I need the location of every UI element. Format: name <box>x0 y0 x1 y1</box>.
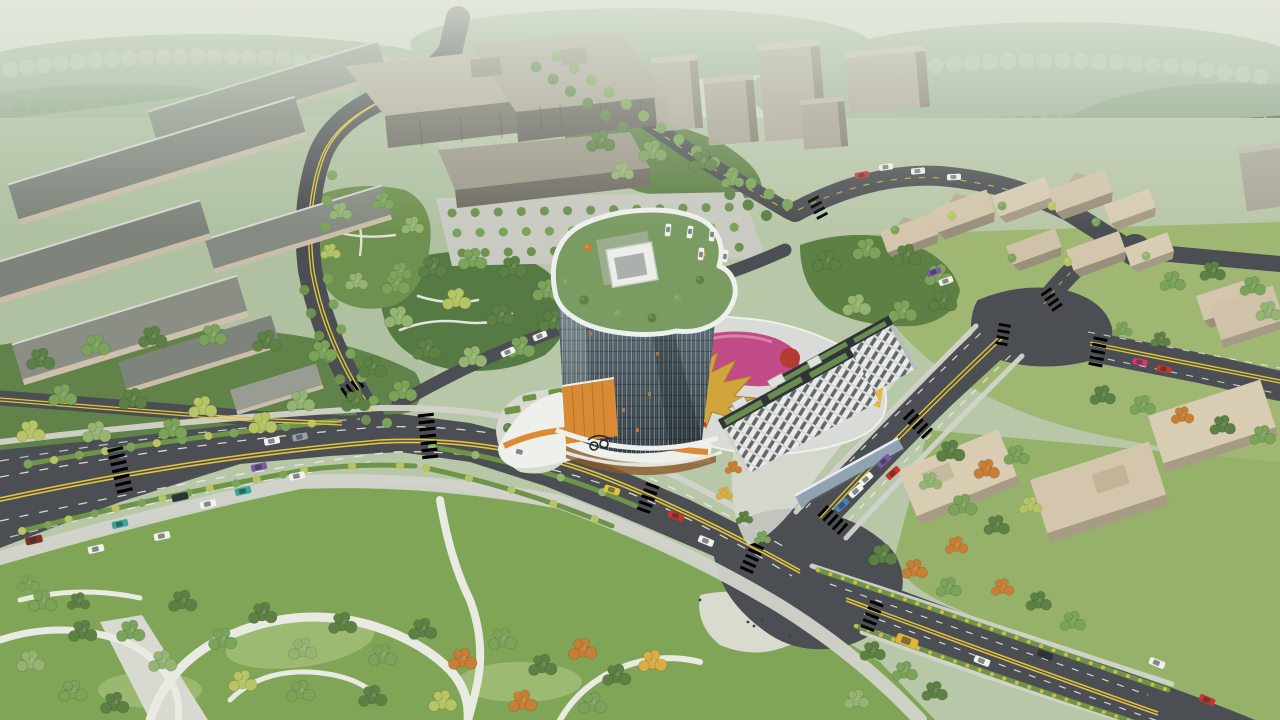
roof-tree <box>696 276 705 285</box>
atmospheric-haze <box>0 0 1280 230</box>
roof-tree <box>579 295 589 305</box>
tree <box>1142 252 1151 261</box>
scene-svg <box>0 0 1280 720</box>
aerial-render-canvas <box>0 0 1280 720</box>
roof-tree <box>674 294 683 303</box>
roof-tree-autumn <box>584 244 592 252</box>
roof-tree <box>648 314 657 323</box>
tree <box>1008 254 1017 263</box>
roof-tree <box>613 309 623 319</box>
crimson-blob <box>780 348 800 368</box>
tree <box>1064 258 1073 267</box>
roof-tree <box>562 278 570 286</box>
